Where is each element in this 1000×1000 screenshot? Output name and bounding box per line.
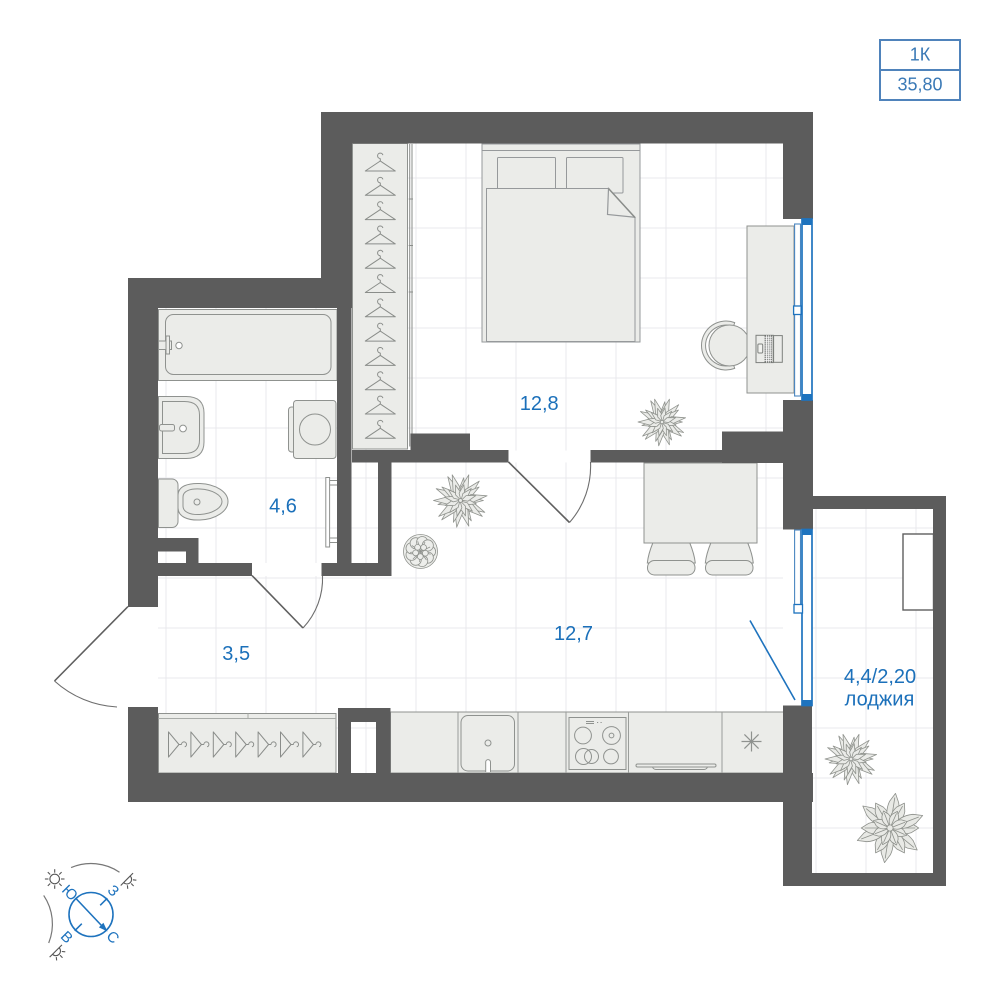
- svg-text:3,5: 3,5: [222, 643, 250, 665]
- svg-text:4,4/2,20: 4,4/2,20: [844, 666, 916, 688]
- svg-text:4,6: 4,6: [269, 496, 297, 518]
- svg-text:12,7: 12,7: [554, 623, 593, 645]
- svg-text:12,8: 12,8: [520, 393, 559, 415]
- svg-text:35,80: 35,80: [897, 75, 942, 95]
- svg-text:лоджия: лоджия: [845, 689, 915, 711]
- svg-text:1К: 1К: [910, 45, 931, 65]
